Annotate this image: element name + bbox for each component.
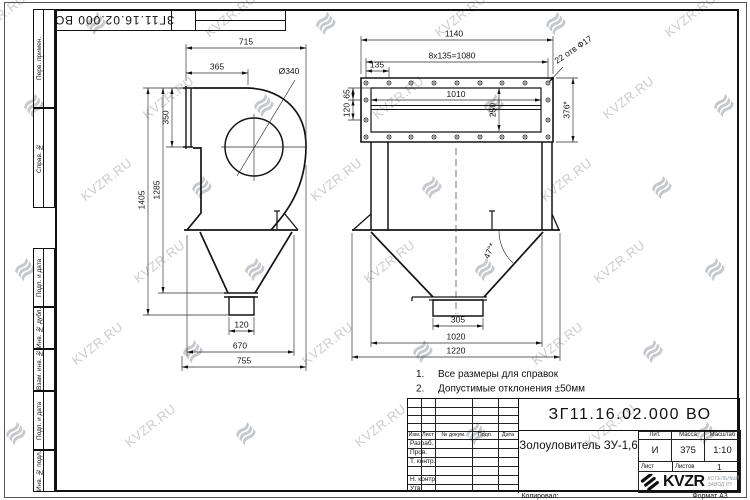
tb-row-tkontr: Т. контр. bbox=[410, 459, 435, 466]
margin-box-vzam-inv: Взам. инв. № bbox=[33, 349, 55, 391]
note-2-num: 2. bbox=[416, 384, 424, 395]
tb-header-data: Дата bbox=[498, 433, 518, 439]
dim-376: 376* bbox=[562, 101, 572, 119]
margin-box-sprav-no: Справ. № bbox=[33, 108, 55, 208]
dim-1285: 1285 bbox=[152, 180, 162, 199]
dim-dia340: Ø340 bbox=[279, 66, 300, 76]
dia-leader bbox=[237, 80, 295, 176]
dim-305: 305 bbox=[451, 315, 465, 325]
angle-arc bbox=[499, 231, 513, 263]
dim-1140: 1140 bbox=[445, 29, 464, 39]
dim-715: 715 bbox=[239, 37, 253, 47]
dim-65: 65 bbox=[342, 89, 352, 99]
corner-stamp-cells bbox=[195, 9, 286, 31]
corner-stamp-text: ЗГ11.16.02.000 ВО bbox=[54, 13, 174, 27]
outlet-box bbox=[229, 297, 254, 315]
tb-lit-value: И bbox=[638, 439, 672, 462]
front-view: 1140 8x135=1080 135 1010 250 65 120 376*… bbox=[342, 29, 595, 362]
dim-755: 755 bbox=[237, 356, 251, 366]
tb-header-list: Лист bbox=[421, 433, 435, 439]
corner-stamp-cell bbox=[171, 9, 196, 31]
dim-1020: 1020 bbox=[447, 332, 466, 342]
tb-header-dokum: № докум. bbox=[435, 433, 472, 439]
tb-sheets-label: Листов bbox=[675, 464, 695, 470]
tb-company-cell: KVZR КОТЕЛЬНЫЙ ЗАВОД.РУ bbox=[638, 471, 741, 493]
dim-120-side: 120 bbox=[234, 320, 248, 330]
kvzr-logo-icon bbox=[640, 474, 660, 490]
notes: 1. Все размеры для справок 2. Допустимые… bbox=[416, 369, 585, 395]
tb-row-prov: Пров. bbox=[410, 450, 427, 457]
side-view: Ø340 715 365 350 1285 1405 120 670 755 bbox=[137, 37, 308, 372]
support-legs bbox=[371, 142, 552, 230]
dim-120-front: 120 bbox=[342, 103, 352, 117]
margin-box-perv-primen: Перв. примен. bbox=[33, 9, 55, 108]
casing-left-edge bbox=[187, 148, 201, 230]
hopper-cone bbox=[200, 232, 292, 293]
dim-1220: 1220 bbox=[447, 346, 466, 356]
dim-8x135: 8x135=1080 bbox=[428, 51, 475, 61]
note-2-text: Допустимые отклонения ±50мм bbox=[438, 384, 585, 395]
tb-row-nkontr: Н. контр. bbox=[410, 477, 437, 484]
margin-box-podp-data-1: Подп. и дата bbox=[33, 248, 55, 307]
margin-box-inv-podl: Инв. № подл. bbox=[33, 450, 55, 492]
lifting-lug-front bbox=[489, 211, 495, 229]
center-cross bbox=[221, 114, 307, 181]
dim-holes-note: 22 отв Ф17 bbox=[553, 33, 595, 66]
dim-350: 350 bbox=[161, 110, 171, 124]
stiffener-lines bbox=[371, 106, 541, 110]
note-1-text: Все размеры для справок bbox=[438, 369, 559, 380]
tb-mass-value: 375 bbox=[671, 439, 705, 462]
dim-135: 135 bbox=[370, 60, 384, 70]
tb-row-utv: Утв. bbox=[410, 486, 422, 493]
inlet-flange bbox=[183, 86, 193, 149]
tb-part-name: Золоуловитель ЗУ-1,6 bbox=[518, 431, 638, 493]
extension-lines-front bbox=[348, 36, 578, 361]
note-1-num: 1. bbox=[416, 369, 424, 380]
dim-47deg: 47°* bbox=[481, 241, 497, 260]
drawing-sheet: KVZR.RU≋KVZR.RU≋KVZR.RU≋KVZR.RU≋KVZR.RU≋… bbox=[0, 0, 750, 500]
hopper-cone-front bbox=[371, 232, 543, 297]
dim-670: 670 bbox=[233, 341, 247, 351]
tb-header-izm: Изм. bbox=[408, 433, 421, 439]
kvzr-logo-subtext: КОТЕЛЬНЫЙ ЗАВОД.РУ bbox=[708, 476, 739, 488]
kvzr-logo-text: KVZR bbox=[663, 473, 705, 491]
dim-250: 250 bbox=[488, 103, 498, 117]
format-label: Формат А3 bbox=[675, 492, 745, 500]
dim-1010: 1010 bbox=[447, 89, 466, 99]
tb-header-podp: Подп. bbox=[472, 433, 498, 439]
title-block: Изм. Лист № докум. Подп. Дата Разраб. Пр… bbox=[407, 398, 740, 492]
scroll-casing bbox=[193, 88, 306, 230]
copied-label: Копировал: bbox=[495, 492, 585, 500]
tb-doc-number: ЗГ11.16.02.000 ВО bbox=[518, 399, 741, 431]
margin-box-inv-dubl: Инв. № дубл. bbox=[33, 307, 55, 349]
corner-stamp-number: ЗГ11.16.02.000 ВО bbox=[56, 9, 172, 31]
dim-365: 365 bbox=[210, 62, 224, 72]
extension-lines-side bbox=[143, 44, 306, 371]
tb-row-razrab: Разраб. bbox=[410, 441, 433, 448]
dim-1405: 1405 bbox=[137, 190, 147, 209]
right-gusset bbox=[284, 213, 298, 230]
tb-scale-value: 1:10 bbox=[704, 439, 741, 462]
margin-box-podp-data-2: Подп. и дата bbox=[33, 391, 55, 450]
